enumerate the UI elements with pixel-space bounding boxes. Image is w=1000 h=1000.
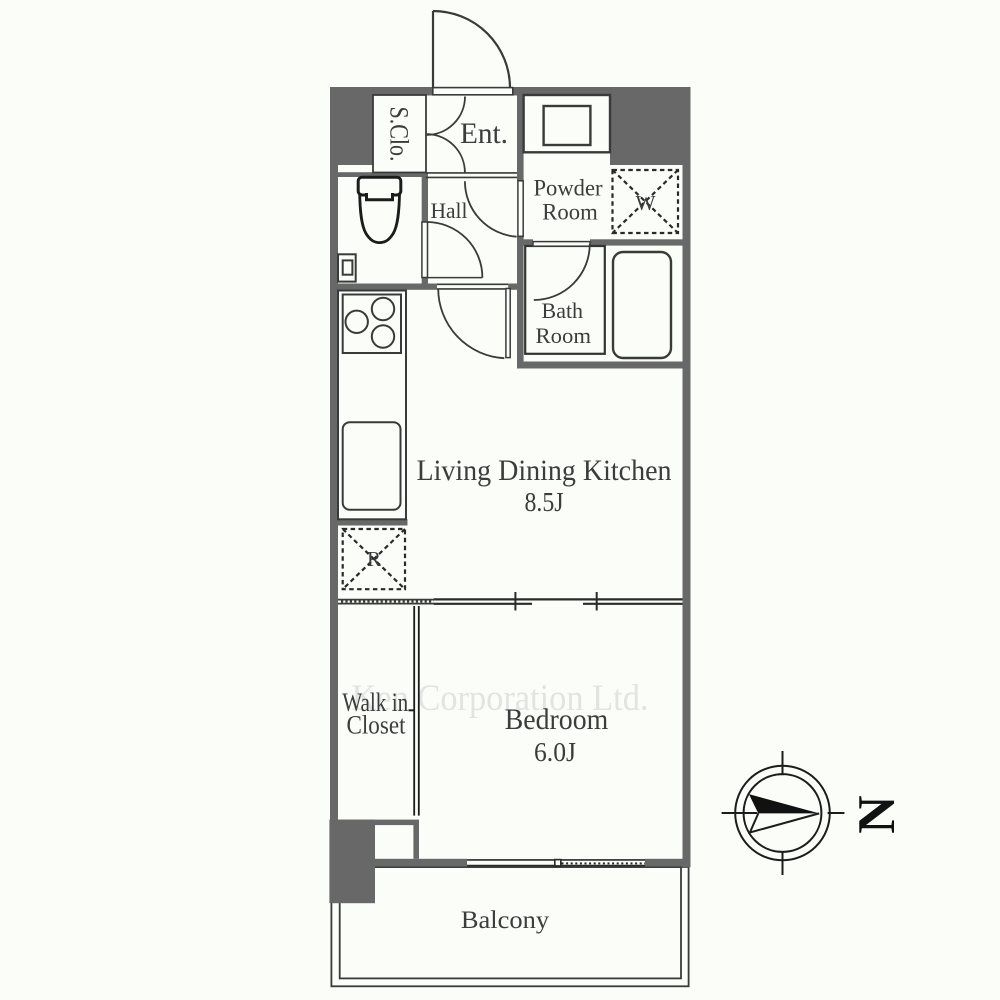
svg-text:Bedroom: Bedroom [505,703,609,736]
svg-text:8.5J: 8.5J [525,487,564,517]
svg-text:Ent.: Ent. [460,117,508,150]
svg-text:Powder: Powder [534,176,603,201]
svg-text:Balcony: Balcony [461,907,550,934]
svg-text:R: R [367,547,381,571]
svg-text:S.Clo.: S.Clo. [385,107,414,162]
svg-text:6.0J: 6.0J [534,737,576,767]
svg-text:Room: Room [536,323,592,348]
svg-text:N: N [848,795,906,833]
svg-text:Bath: Bath [542,298,584,323]
svg-text:Room: Room [542,200,598,225]
svg-text:Living Dining Kitchen: Living Dining Kitchen [417,454,672,487]
svg-text:Closet: Closet [347,711,407,740]
svg-text:W: W [636,191,656,215]
svg-text:Hall: Hall [431,198,468,223]
